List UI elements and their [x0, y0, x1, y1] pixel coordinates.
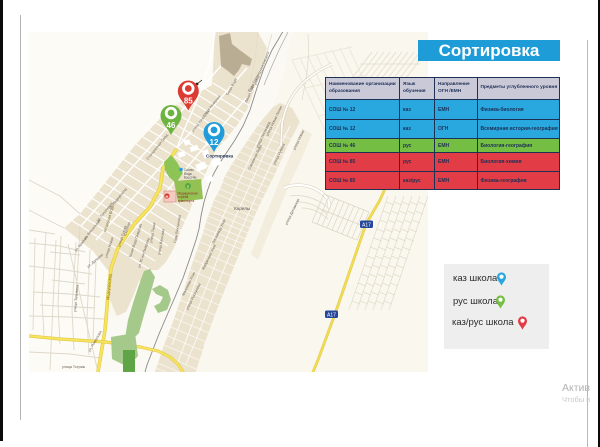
svg-text:Н: Н: [166, 194, 169, 199]
svg-text:Бассейн: Бассейн: [184, 176, 197, 180]
svg-text:12: 12: [210, 138, 219, 147]
svg-text:улица Тогузак: улица Тогузак: [62, 365, 86, 369]
svg-text:А17: А17: [327, 312, 336, 318]
svg-text:у: у: [187, 184, 189, 189]
svg-text:85: 85: [184, 97, 193, 106]
svg-text:А17: А17: [362, 222, 371, 228]
svg-text:Карелы: Карелы: [234, 206, 250, 211]
svg-text:Сортировка: Сортировка: [206, 154, 234, 159]
svg-text:46: 46: [167, 121, 176, 130]
svg-text:транспорта: транспорта: [178, 199, 195, 203]
